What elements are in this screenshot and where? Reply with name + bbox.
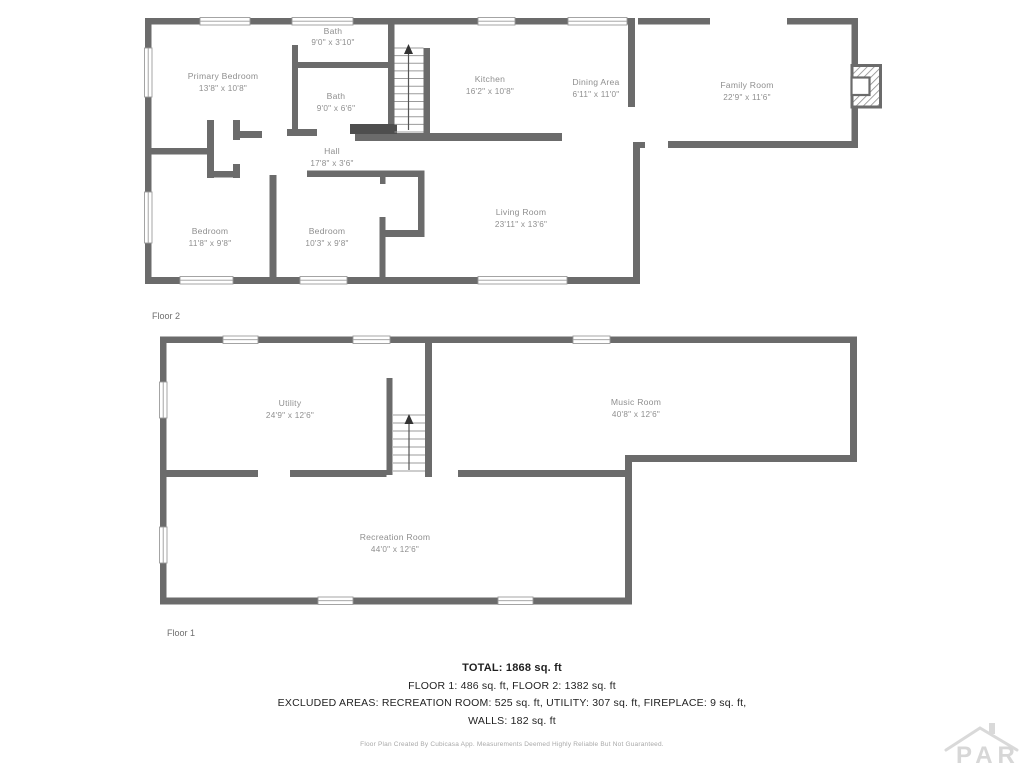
room-dims: 44'0" x 12'6" [371, 545, 419, 554]
fireplace-icon [852, 66, 881, 108]
room-label: Bath [324, 26, 343, 36]
excluded-areas-text: EXCLUDED AREAS: RECREATION ROOM: 525 sq.… [0, 695, 1024, 713]
total-area-text: TOTAL: 1868 sq. ft [0, 660, 1024, 678]
room-dims: 22'9" x 11'6" [723, 93, 771, 102]
room-label: Hall [324, 146, 340, 156]
room-label: Music Room [611, 397, 661, 407]
room-dims: 9'0" x 3'10" [311, 38, 354, 47]
floor2-label: Floor 2 [152, 311, 180, 321]
room-dims: 24'9" x 12'6" [266, 411, 314, 420]
floor1-label: Floor 1 [167, 628, 195, 638]
room-dims: 13'8" x 10'8" [199, 84, 247, 93]
room-label: Dining Area [572, 77, 619, 87]
room-label: Utility [279, 398, 302, 408]
room-label: Bath [327, 91, 346, 101]
area-summary: TOTAL: 1868 sq. ft FLOOR 1: 486 sq. ft, … [0, 660, 1024, 730]
stairs-up-arrow-icon [405, 414, 414, 470]
room-label: Primary Bedroom [188, 71, 259, 81]
floor2-walls [145, 18, 858, 284]
room-dims: 9'0" x 6'6" [317, 104, 356, 113]
room-dims: 6'11" x 11'0" [573, 90, 620, 99]
floor-areas-text: FLOOR 1: 486 sq. ft, FLOOR 2: 1382 sq. f… [0, 678, 1024, 696]
room-label: Living Room [496, 207, 547, 217]
room-dims: 10'3" x 9'8" [305, 239, 348, 248]
room-dims: 17'8" x 3'6" [310, 159, 353, 168]
floorplan-drawing: Primary Bedroom 13'8" x 10'8" Bath 9'0" … [0, 0, 1024, 768]
floor1-plan: Utility 24'9" x 12'6" Music Room 40'8" x… [160, 336, 858, 638]
floor2-plan: Primary Bedroom 13'8" x 10'8" Bath 9'0" … [145, 18, 881, 322]
room-dims: 11'8" x 9'8" [189, 239, 232, 248]
understair-wall [350, 124, 397, 134]
floorplan-page: Primary Bedroom 13'8" x 10'8" Bath 9'0" … [0, 0, 1024, 768]
room-dims: 16'2" x 10'8" [466, 87, 514, 96]
floor2-staircase [395, 44, 424, 132]
room-dims: 40'8" x 12'6" [612, 410, 660, 419]
room-label: Bedroom [192, 226, 229, 236]
room-label: Bedroom [309, 226, 346, 236]
room-dims: 23'11" x 13'6" [495, 220, 547, 229]
floor1-walls [160, 337, 857, 605]
disclaimer-text: Floor Plan Created By Cubicasa App. Meas… [0, 741, 1024, 748]
room-label: Family Room [720, 80, 773, 90]
floor1-staircase [393, 414, 425, 471]
room-label: Recreation Room [360, 532, 431, 542]
room-label: Kitchen [475, 74, 505, 84]
walls-area-text: WALLS: 182 sq. ft [0, 713, 1024, 731]
